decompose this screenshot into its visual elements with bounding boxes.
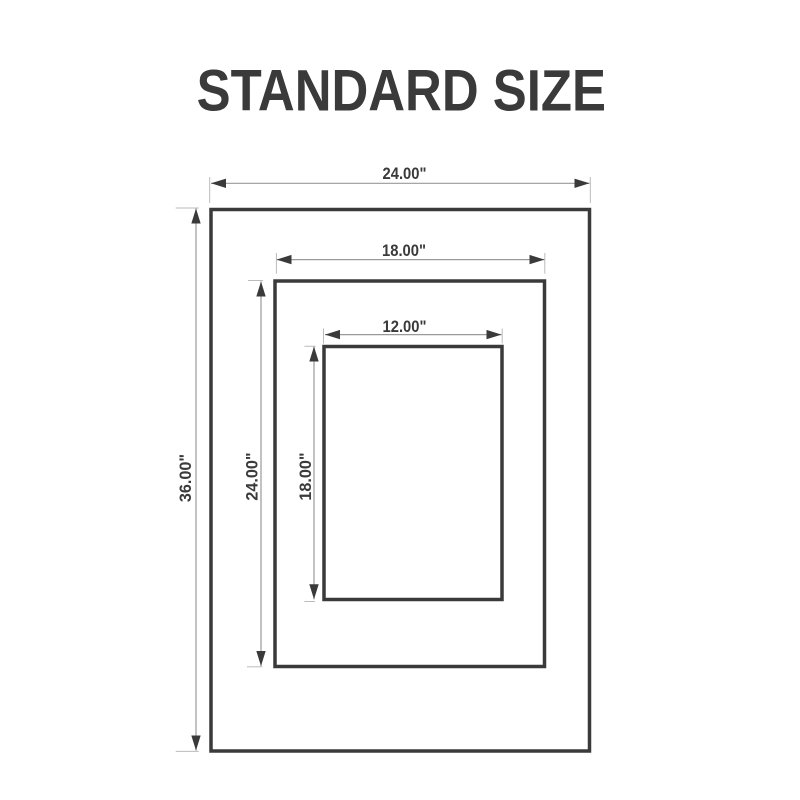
svg-text:18.00": 18.00" — [297, 452, 315, 500]
svg-text:24.00": 24.00" — [383, 165, 427, 183]
svg-text:12.00": 12.00" — [383, 318, 427, 336]
svg-text:24.00": 24.00" — [243, 452, 261, 500]
svg-text:18.00": 18.00" — [382, 242, 426, 260]
svg-text:STANDARD SIZE: STANDARD SIZE — [197, 58, 606, 123]
svg-text:36.00": 36.00" — [177, 454, 195, 502]
